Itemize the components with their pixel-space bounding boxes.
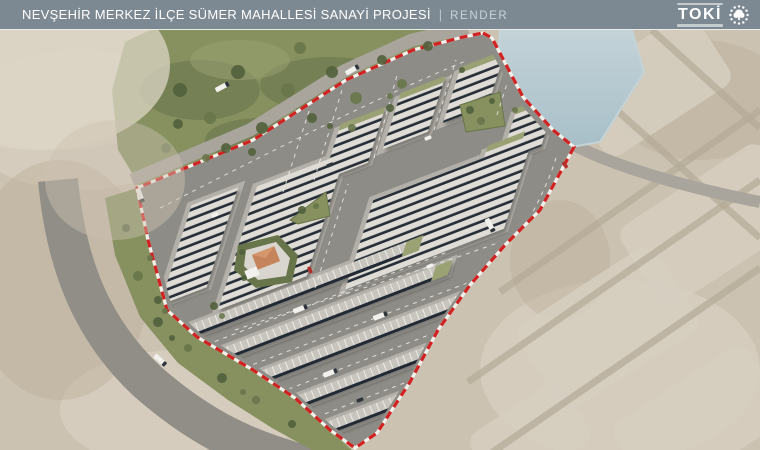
tree: [162, 308, 168, 314]
render-label: RENDER: [450, 10, 508, 22]
tree: [252, 396, 260, 404]
tree: [221, 143, 231, 153]
tree: [326, 66, 338, 78]
tree: [239, 249, 245, 255]
tree: [147, 255, 153, 261]
aerial-site-plan: [0, 30, 760, 450]
toki-emblem-icon: [728, 4, 750, 26]
tree: [231, 65, 245, 79]
tree: [350, 92, 362, 104]
tree: [459, 67, 465, 73]
tree: [219, 313, 225, 319]
tree: [240, 389, 246, 395]
tree: [327, 123, 333, 129]
toki-smalltext-top-bar: [677, 3, 723, 6]
tree: [248, 148, 256, 156]
tree: [169, 335, 175, 341]
tree: [184, 344, 192, 352]
app-window: NEVŞEHİR MERKEZ İLÇE SÜMER MAHALLESİ SAN…: [0, 0, 760, 450]
tree: [285, 277, 291, 283]
tree: [153, 317, 163, 327]
tree: [133, 271, 143, 281]
toki-logo: TOKİ: [677, 3, 750, 27]
tree: [202, 154, 210, 162]
tree: [281, 83, 295, 97]
tree: [348, 124, 356, 132]
project-title-group: NEVŞEHİR MERKEZ İLÇE SÜMER MAHALLESİ SAN…: [22, 7, 508, 22]
tree: [466, 106, 474, 114]
tree: [298, 206, 306, 214]
toki-logo-text: TOKİ: [677, 3, 723, 27]
tree: [256, 122, 268, 134]
tree: [210, 302, 218, 310]
tree: [377, 55, 387, 65]
tree: [387, 93, 393, 99]
tree: [397, 79, 407, 89]
tree: [307, 113, 317, 123]
haze-patch: [45, 120, 185, 240]
toki-wordmark: TOKİ: [678, 7, 722, 23]
tree: [489, 98, 495, 104]
title-bar: NEVŞEHİR MERKEZ İLÇE SÜMER MAHALLESİ SAN…: [0, 0, 760, 30]
tree: [512, 107, 518, 113]
tree: [173, 83, 187, 97]
tree: [217, 373, 227, 383]
tree: [288, 420, 296, 428]
tree: [154, 296, 162, 304]
toki-smalltext-bottom-bar: [677, 24, 723, 27]
tree: [173, 119, 183, 129]
tree: [386, 104, 394, 112]
tree: [477, 117, 485, 125]
project-title: NEVŞEHİR MERKEZ İLÇE SÜMER MAHALLESİ SAN…: [22, 7, 431, 22]
tree: [423, 41, 433, 51]
site-render-image: [0, 30, 760, 450]
tree: [204, 112, 216, 124]
tree: [241, 275, 247, 281]
title-divider: |: [439, 7, 442, 22]
tree: [313, 203, 319, 209]
tree: [294, 42, 306, 54]
